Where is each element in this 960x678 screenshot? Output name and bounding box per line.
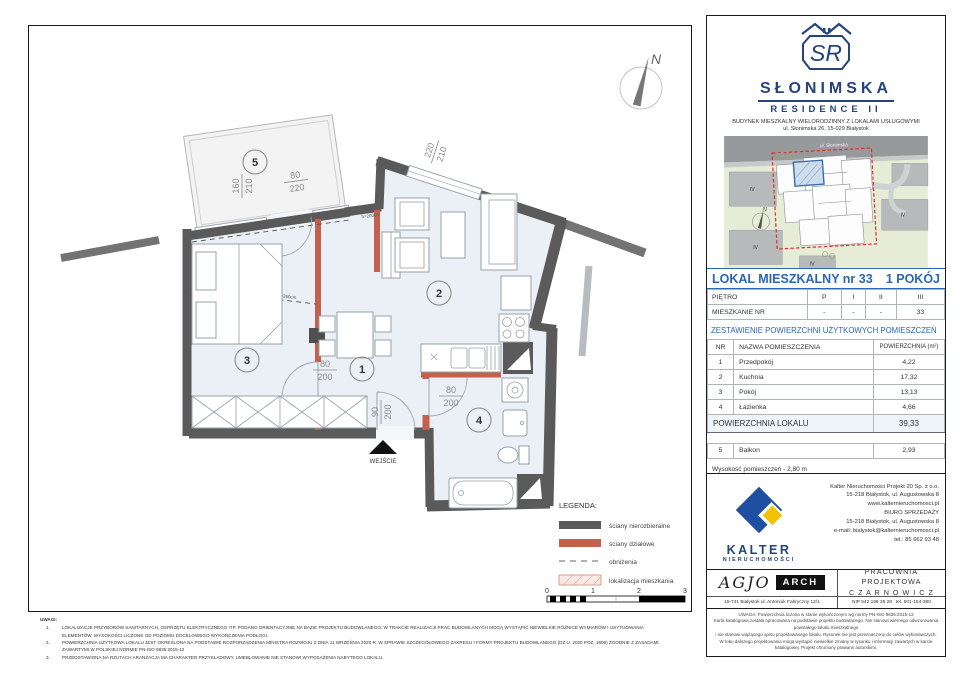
developer-phone: tel.: 85 662 93 48 — [805, 536, 939, 545]
architects-block: AGJO ARCH 15-741 Białystok ul. Antoniuk … — [707, 569, 945, 608]
unit-title-row: LOKAL MIESZKALNY nr 33 1 POKÓJ — [707, 268, 945, 289]
floor-plan-sheet: h=260cm h=260cm — [28, 25, 692, 612]
table-row: PIĘTRO P I II III — [708, 290, 945, 305]
legend-swatch-partitions — [559, 539, 601, 547]
block-label: IV — [753, 245, 758, 251]
table-gap — [707, 433, 945, 442]
svg-text:210: 210 — [435, 145, 449, 162]
table-row: MIESZKANIE NR - - - 33 — [708, 305, 945, 320]
pracownia-tel: tel. 501-154-380 — [896, 600, 931, 605]
note-item: 3. PRZEDSTAWIONA NA RZUTACH ARANŻACJA MA… — [40, 654, 670, 661]
svg-text:80: 80 — [446, 385, 456, 395]
areas-table: NR NAZWA POMIESZCZENIA POWIERZCHNIA (m²)… — [707, 339, 945, 433]
legend-label: lokalizacja mieszkania — [609, 578, 674, 585]
height-note: Wysokość pomieszczeń - 2,80 m — [707, 459, 945, 473]
svg-text:80: 80 — [320, 359, 330, 369]
kalter-diamond-icon — [734, 485, 784, 535]
dim-top-window: 220 210 — [421, 137, 450, 167]
svg-text:3: 3 — [244, 355, 250, 367]
svg-text:4: 4 — [476, 415, 483, 427]
block-label: IV — [750, 186, 755, 192]
unit-title: LOKAL MIESZKALNY nr 33 — [712, 272, 873, 286]
svg-text:200: 200 — [443, 398, 458, 408]
kalter-logo: KALTER NIERUCHOMOŚCI — [713, 481, 805, 563]
floor-table: PIĘTRO P I II III MIESZKANIE NR - - - 33 — [707, 289, 945, 320]
table-row: 1 Przedpokój 4,22 — [708, 355, 945, 370]
neighbour-wall-side — [582, 266, 589, 356]
svg-text:210: 210 — [244, 178, 254, 193]
note-item: 1. LOKALIZACJE PRZYBORÓW SANITARNYCH, OS… — [40, 624, 670, 639]
pracownia-line2: C Z A R N O W I C Z — [849, 588, 934, 598]
legend-swatch-walls — [559, 521, 601, 529]
entrance-marker: WEJŚCIE — [369, 440, 397, 465]
disclaimer-block: UWAGA: Powierzchnia liczona w stanie wyk… — [707, 608, 945, 657]
brand-subtitle: RESIDENCE II — [707, 104, 945, 115]
developer-contact: Kalter Nieruchomości Projekt 20 Sp. z o.… — [805, 481, 939, 563]
brand-rule — [758, 100, 894, 102]
svg-text:1: 1 — [359, 364, 365, 376]
svg-text:3: 3 — [683, 588, 687, 595]
legend-label: ściany nierozbieralne — [609, 523, 670, 530]
areas-section-title: ZESTAWIENIE POWIERZCHNI UŻYTKOWYCH POMIE… — [707, 320, 945, 339]
notes-block: UWAGI: 1. LOKALIZACJE PRZYBORÓW SANITARN… — [40, 616, 670, 661]
scale-bar: 0 1 2 3 — [545, 588, 687, 602]
notes-title: UWAGI: — [40, 616, 670, 623]
table-row: 4 Łazienka 4,66 — [708, 400, 945, 415]
kalter-name: KALTER — [713, 543, 805, 557]
svg-text:0: 0 — [545, 588, 549, 595]
legend-title: LEGENDA: — [559, 501, 597, 510]
table-row: 5 Balkon 2,93 — [708, 443, 945, 458]
svg-text:1: 1 — [591, 588, 595, 595]
svg-text:5: 5 — [252, 157, 258, 169]
note-item: 2. POWIERZCHNIA UŻYTKOWA LOKALU JEST OKR… — [40, 639, 670, 654]
agjo-cell: AGJO ARCH 15-741 Białystok ul. Antoniuk … — [707, 570, 838, 608]
table-row: 3 Pokój 13,13 — [708, 385, 945, 400]
svg-text:SR: SR — [810, 40, 842, 66]
developer-block: KALTER NIERUCHOMOŚCI Kalter Nieruchomośc… — [707, 473, 945, 569]
block-label: IV — [901, 212, 906, 218]
arch-badge: ARCH — [776, 575, 825, 590]
floor-plan-svg: h=260cm h=260cm — [29, 26, 691, 611]
agjo-logo: AGJO — [719, 573, 771, 592]
table-header-row: NR NAZWA POMIESZCZENIA POWIERZCHNIA (m²) — [708, 340, 945, 355]
svg-text:2: 2 — [637, 588, 641, 595]
neighbour-wall-left — [61, 240, 159, 258]
svg-text:200: 200 — [317, 372, 332, 382]
info-panel: SR SŁONIMSKA RESIDENCE II BUDYNEK MIESZK… — [706, 15, 946, 657]
entrance-door-gap — [376, 426, 414, 440]
pracownia-line1: PRACOWNIA PROJEKTOWA — [838, 567, 945, 587]
pracownia-cell: PRACOWNIA PROJEKTOWA C Z A R N O W I C Z… — [838, 570, 945, 608]
unit-rooms: 1 POKÓJ — [886, 272, 940, 286]
legend-swatch-location — [559, 575, 601, 585]
neighbour-wall-right — [565, 224, 645, 253]
building-description: BUDYNEK MIESZKALNY WIELORODZINNY Z LOKAL… — [707, 119, 945, 125]
north-compass-icon: N — [620, 51, 662, 109]
svg-text:220: 220 — [289, 182, 305, 194]
svg-text:2: 2 — [436, 288, 442, 300]
pracownia-nip: NIP 542 198 35 28 — [852, 600, 892, 605]
compass-n-label: N — [651, 51, 662, 67]
street-label: ul. Słonimska — [820, 142, 848, 148]
brand-name: SŁONIMSKA — [707, 80, 945, 98]
map-compass-n: N — [763, 207, 768, 213]
sr-monogram-icon: SR — [790, 21, 862, 73]
svg-text:90: 90 — [370, 407, 380, 417]
kalter-sub: NIERUCHOMOŚCI — [713, 557, 805, 563]
developer-email: e-mail: bialystok@kalternieruchomosci.pl — [805, 527, 939, 536]
legend-label: ściany działowe — [609, 541, 655, 548]
plan-legend: LEGENDA: ściany nierozbieralne ściany dz… — [559, 501, 674, 585]
svg-text:220: 220 — [422, 141, 436, 158]
brand-block: SR SŁONIMSKA RESIDENCE II BUDYNEK MIESZK… — [707, 16, 945, 136]
highlighted-unit — [793, 160, 824, 186]
total-row: POWIERZCHNIA LOKALU 39,33 — [708, 415, 945, 433]
entrance-label: WEJŚCIE — [370, 457, 397, 465]
svg-text:200: 200 — [383, 404, 393, 419]
legend-label: obniżenia — [609, 559, 637, 566]
balcony-table: 5 Balkon 2,93 — [707, 443, 945, 459]
building-address: ul. Słonimska 26, 15-029 Białystok — [707, 126, 945, 132]
site-map: ul. Słonimska IV IV IV IV — [707, 136, 945, 269]
developer-website: www.kalternieruchomosci.pl — [805, 500, 939, 509]
catalog-card-page: h=260cm h=260cm — [0, 0, 960, 678]
table-row: 2 Kuchnia 17,32 — [708, 370, 945, 385]
agjo-address: 15-741 Białystok ul. Antoniuk Fabryczny … — [707, 596, 837, 608]
block-label: IV — [810, 261, 815, 267]
svg-text:160: 160 — [231, 178, 241, 193]
svg-text:80: 80 — [290, 169, 301, 180]
